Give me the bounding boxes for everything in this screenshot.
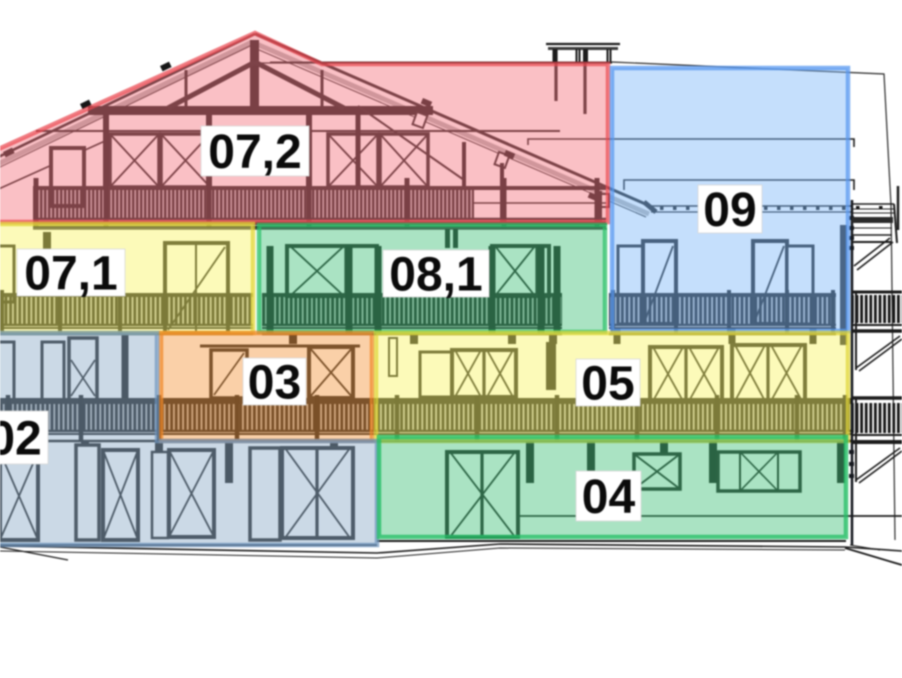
svg-text:07,1: 07,1 [24,248,117,301]
svg-text:04: 04 [582,471,636,524]
svg-text:02: 02 [0,413,42,466]
svg-text:03: 03 [248,357,301,410]
svg-text:08,1: 08,1 [389,249,482,302]
svg-text:07,2: 07,2 [208,126,301,179]
svg-text:09: 09 [703,184,756,237]
svg-text:05: 05 [581,358,634,411]
